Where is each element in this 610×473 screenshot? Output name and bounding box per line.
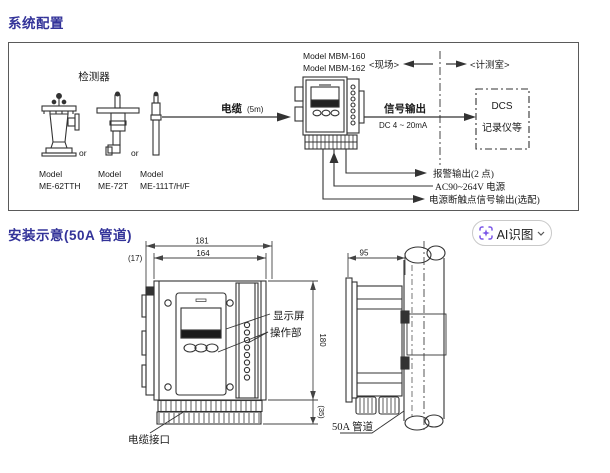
system-config-box: 检测器	[8, 42, 579, 211]
detector-label: 检测器	[78, 70, 110, 83]
dim-180-label: 180	[318, 333, 327, 347]
controller-front-view	[142, 281, 266, 424]
or-label-1: or	[79, 148, 87, 158]
dcs-label: DCS	[491, 101, 512, 112]
pipe-drawing	[404, 241, 446, 432]
detector-me62tth-drawing	[42, 93, 79, 156]
model3-code: ME-111T/H/F	[140, 181, 190, 191]
model3-word: Model	[140, 169, 163, 179]
controller-model-1: Model MBM-160	[303, 51, 366, 61]
dcs-recorder-label: 记录仪等	[482, 121, 522, 134]
controller-drawing	[295, 77, 364, 149]
pipe-label: 50A 管道	[332, 420, 374, 433]
dim-35-label: (35)	[317, 405, 326, 419]
dim-95-label: 95	[360, 249, 369, 258]
output-lines	[323, 149, 433, 203]
controller-side-view	[346, 278, 409, 414]
operation-label: 操作部	[270, 326, 302, 339]
system-config-diagram: 检测器	[9, 43, 578, 210]
dcs-box: DCS 记录仪等	[476, 89, 529, 149]
dim-164-label: 164	[196, 249, 210, 258]
room-label: <计测室>	[470, 59, 510, 71]
signal-output-label: 信号输出	[384, 102, 426, 115]
signal-output: 信号输出 DC 4 ~ 20mA	[364, 102, 476, 130]
detector-model-labels: Model ME-62TTH Model ME-72T Model ME-111…	[39, 169, 190, 191]
cable-label: 电缆	[221, 102, 242, 115]
detector-me72t-drawing	[97, 92, 139, 155]
power-input-label: AC90~264V 电源	[435, 181, 506, 193]
field-label: <现场>	[369, 60, 400, 71]
dim-17-label: (17)	[128, 254, 143, 263]
model1-word: Model	[39, 169, 62, 179]
or-label-2: or	[131, 148, 139, 158]
cable-connection: 电缆 (5m)	[162, 102, 291, 122]
alarm-output-label: 报警输出(2 点)	[433, 168, 494, 180]
contact-output-label: 电源断触点信号输出(选配)	[429, 194, 540, 206]
controller-model-2: Model MBM-162	[303, 63, 366, 73]
cable-port-label: 电缆接口	[128, 433, 170, 446]
model1-code: ME-62TTH	[39, 181, 81, 191]
depth-dimension	[348, 253, 405, 277]
section-title-system-config: 系统配置	[8, 12, 64, 32]
dim-181-label: 181	[195, 237, 209, 246]
height-dimensions	[263, 281, 318, 424]
model2-word: Model	[98, 169, 121, 179]
installation-diagram: 181 164 (17)	[100, 235, 560, 473]
display-label: 显示屏	[273, 310, 305, 322]
signal-range-label: DC 4 ~ 20mA	[379, 121, 428, 130]
model2-code: ME-72T	[98, 181, 128, 191]
cable-length-label: (5m)	[247, 105, 264, 114]
page: 系统配置 检测器	[0, 0, 610, 473]
detector-me111-drawing	[151, 92, 161, 155]
